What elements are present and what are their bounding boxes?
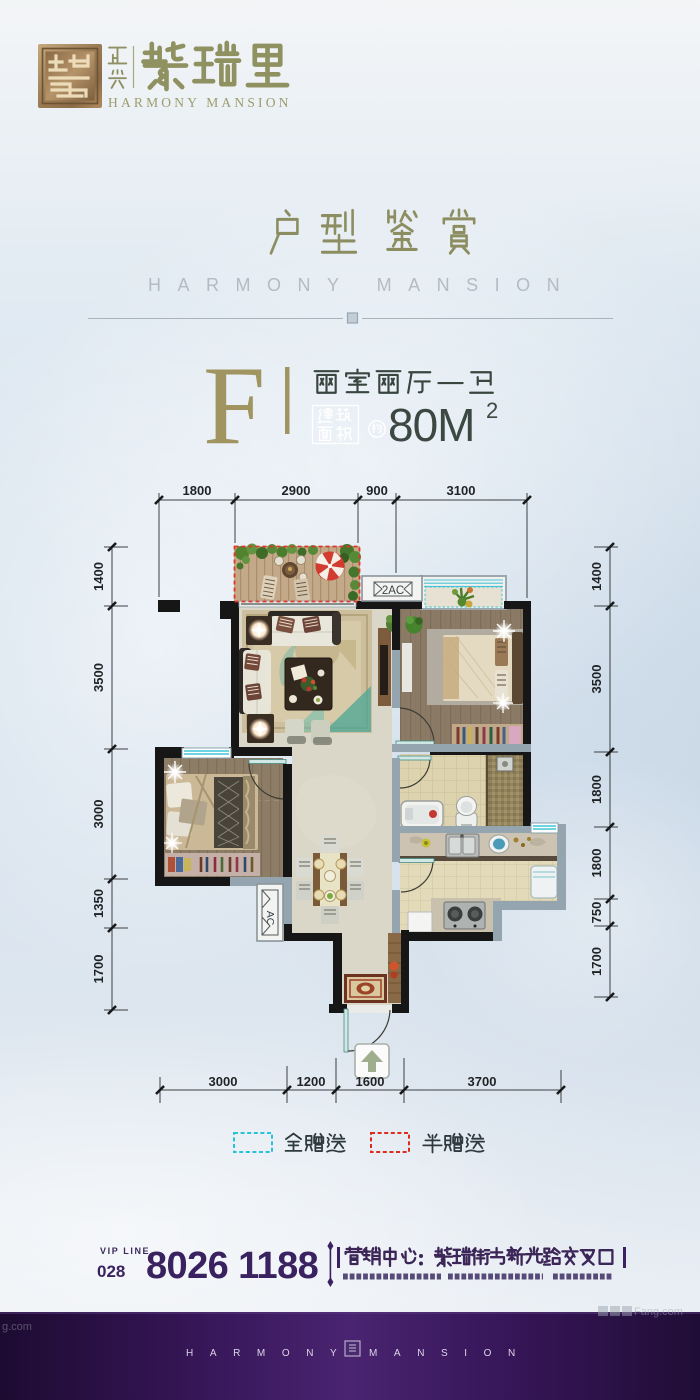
svg-text:2AC: 2AC — [382, 585, 404, 597]
svg-text:900: 900 — [366, 483, 388, 498]
svg-text:1800: 1800 — [589, 775, 604, 804]
svg-text:HARMONY MANSION: HARMONY MANSION — [148, 275, 576, 295]
svg-text:1400: 1400 — [91, 562, 106, 591]
svg-text:Fang.com: Fang.com — [634, 1306, 683, 1318]
svg-text:VIP LINE: VIP LINE — [100, 1246, 150, 1256]
svg-text:1700: 1700 — [589, 947, 604, 976]
svg-text:1800: 1800 — [183, 483, 212, 498]
svg-text:1800: 1800 — [589, 849, 604, 878]
svg-text:3500: 3500 — [589, 665, 604, 694]
svg-text:80M: 80M — [388, 399, 474, 451]
svg-text:AC: AC — [264, 911, 276, 926]
svg-text:1350: 1350 — [91, 889, 106, 918]
svg-text:8026 1188: 8026 1188 — [146, 1245, 318, 1287]
svg-text:1600: 1600 — [356, 1074, 385, 1089]
svg-text:1200: 1200 — [297, 1074, 326, 1089]
svg-text:2900: 2900 — [282, 483, 311, 498]
svg-text:3100: 3100 — [447, 483, 476, 498]
svg-text:HARMONY: HARMONY — [186, 1348, 353, 1359]
svg-text:1400: 1400 — [589, 562, 604, 591]
svg-text:1700: 1700 — [91, 955, 106, 984]
svg-text:2: 2 — [486, 398, 498, 423]
svg-text:MANSION: MANSION — [369, 1348, 532, 1359]
svg-text:750: 750 — [589, 902, 604, 924]
svg-text:HARMONY MANSION: HARMONY MANSION — [108, 95, 292, 110]
svg-text:3000: 3000 — [91, 800, 106, 829]
svg-text:028: 028 — [97, 1262, 125, 1281]
svg-text:3700: 3700 — [468, 1074, 497, 1089]
svg-text:g.com: g.com — [2, 1321, 32, 1333]
svg-text:F: F — [203, 344, 265, 468]
svg-text:3500: 3500 — [91, 663, 106, 692]
svg-text:3000: 3000 — [209, 1074, 238, 1089]
